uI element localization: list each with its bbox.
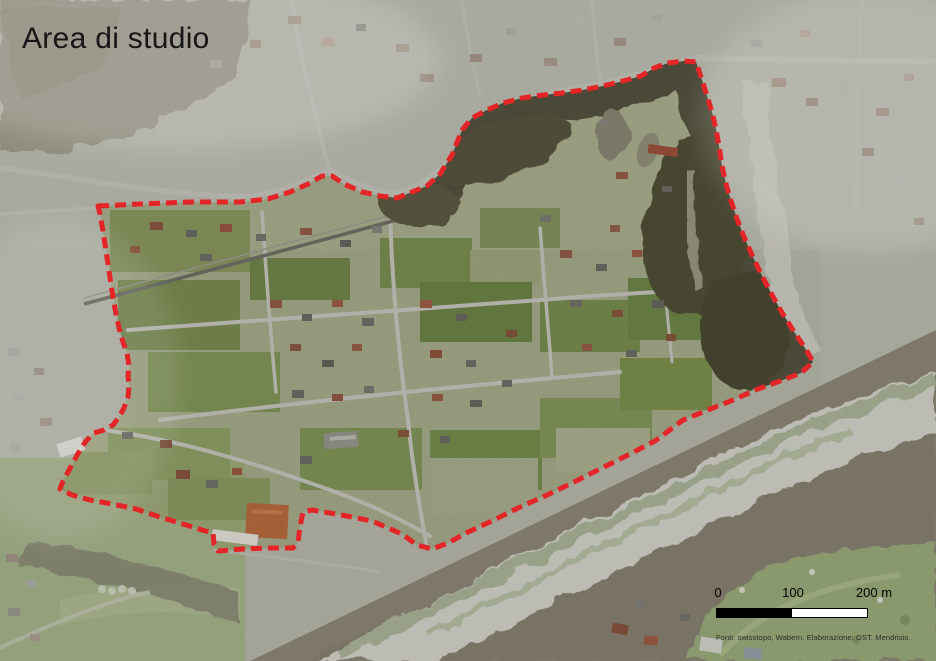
scale-label-0: 0	[714, 585, 721, 600]
scale-label-200: 200 m	[856, 585, 892, 600]
map-title: Area di studio	[22, 22, 210, 55]
map-figure: Area di studio 0 100 200 m Fonti: swisst…	[0, 0, 936, 661]
scale-bar-white-segment	[792, 609, 867, 617]
attribution-text: Fonti: swisstopo, Wabern. Elaborazione: …	[716, 633, 936, 642]
scale-label-100: 100	[782, 585, 804, 600]
aerial-photo-background	[0, 0, 936, 661]
scale-bar	[716, 608, 868, 618]
scale-bar-black-segment	[717, 609, 792, 617]
